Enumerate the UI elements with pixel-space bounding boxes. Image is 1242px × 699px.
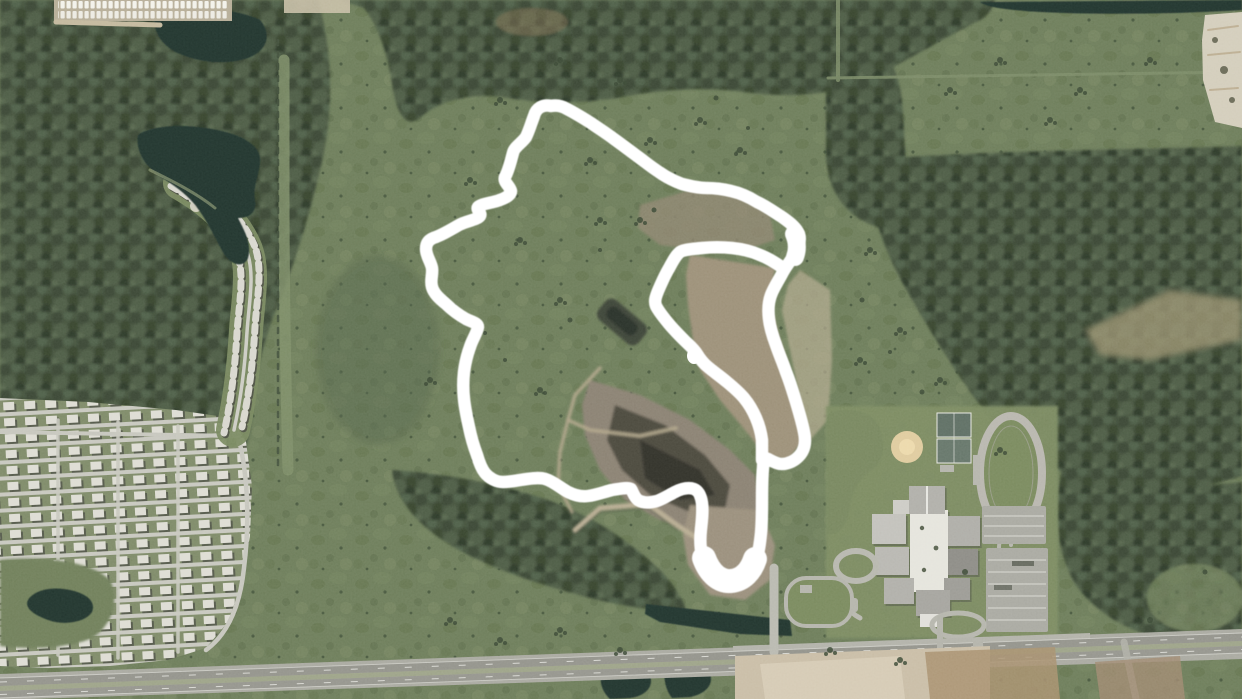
aerial-map-view[interactable]: [0, 0, 1242, 699]
annotation-junction-blob: [794, 234, 797, 257]
aerial-map-image: [0, 0, 1242, 699]
photo-grain-overlay: [0, 0, 1242, 699]
